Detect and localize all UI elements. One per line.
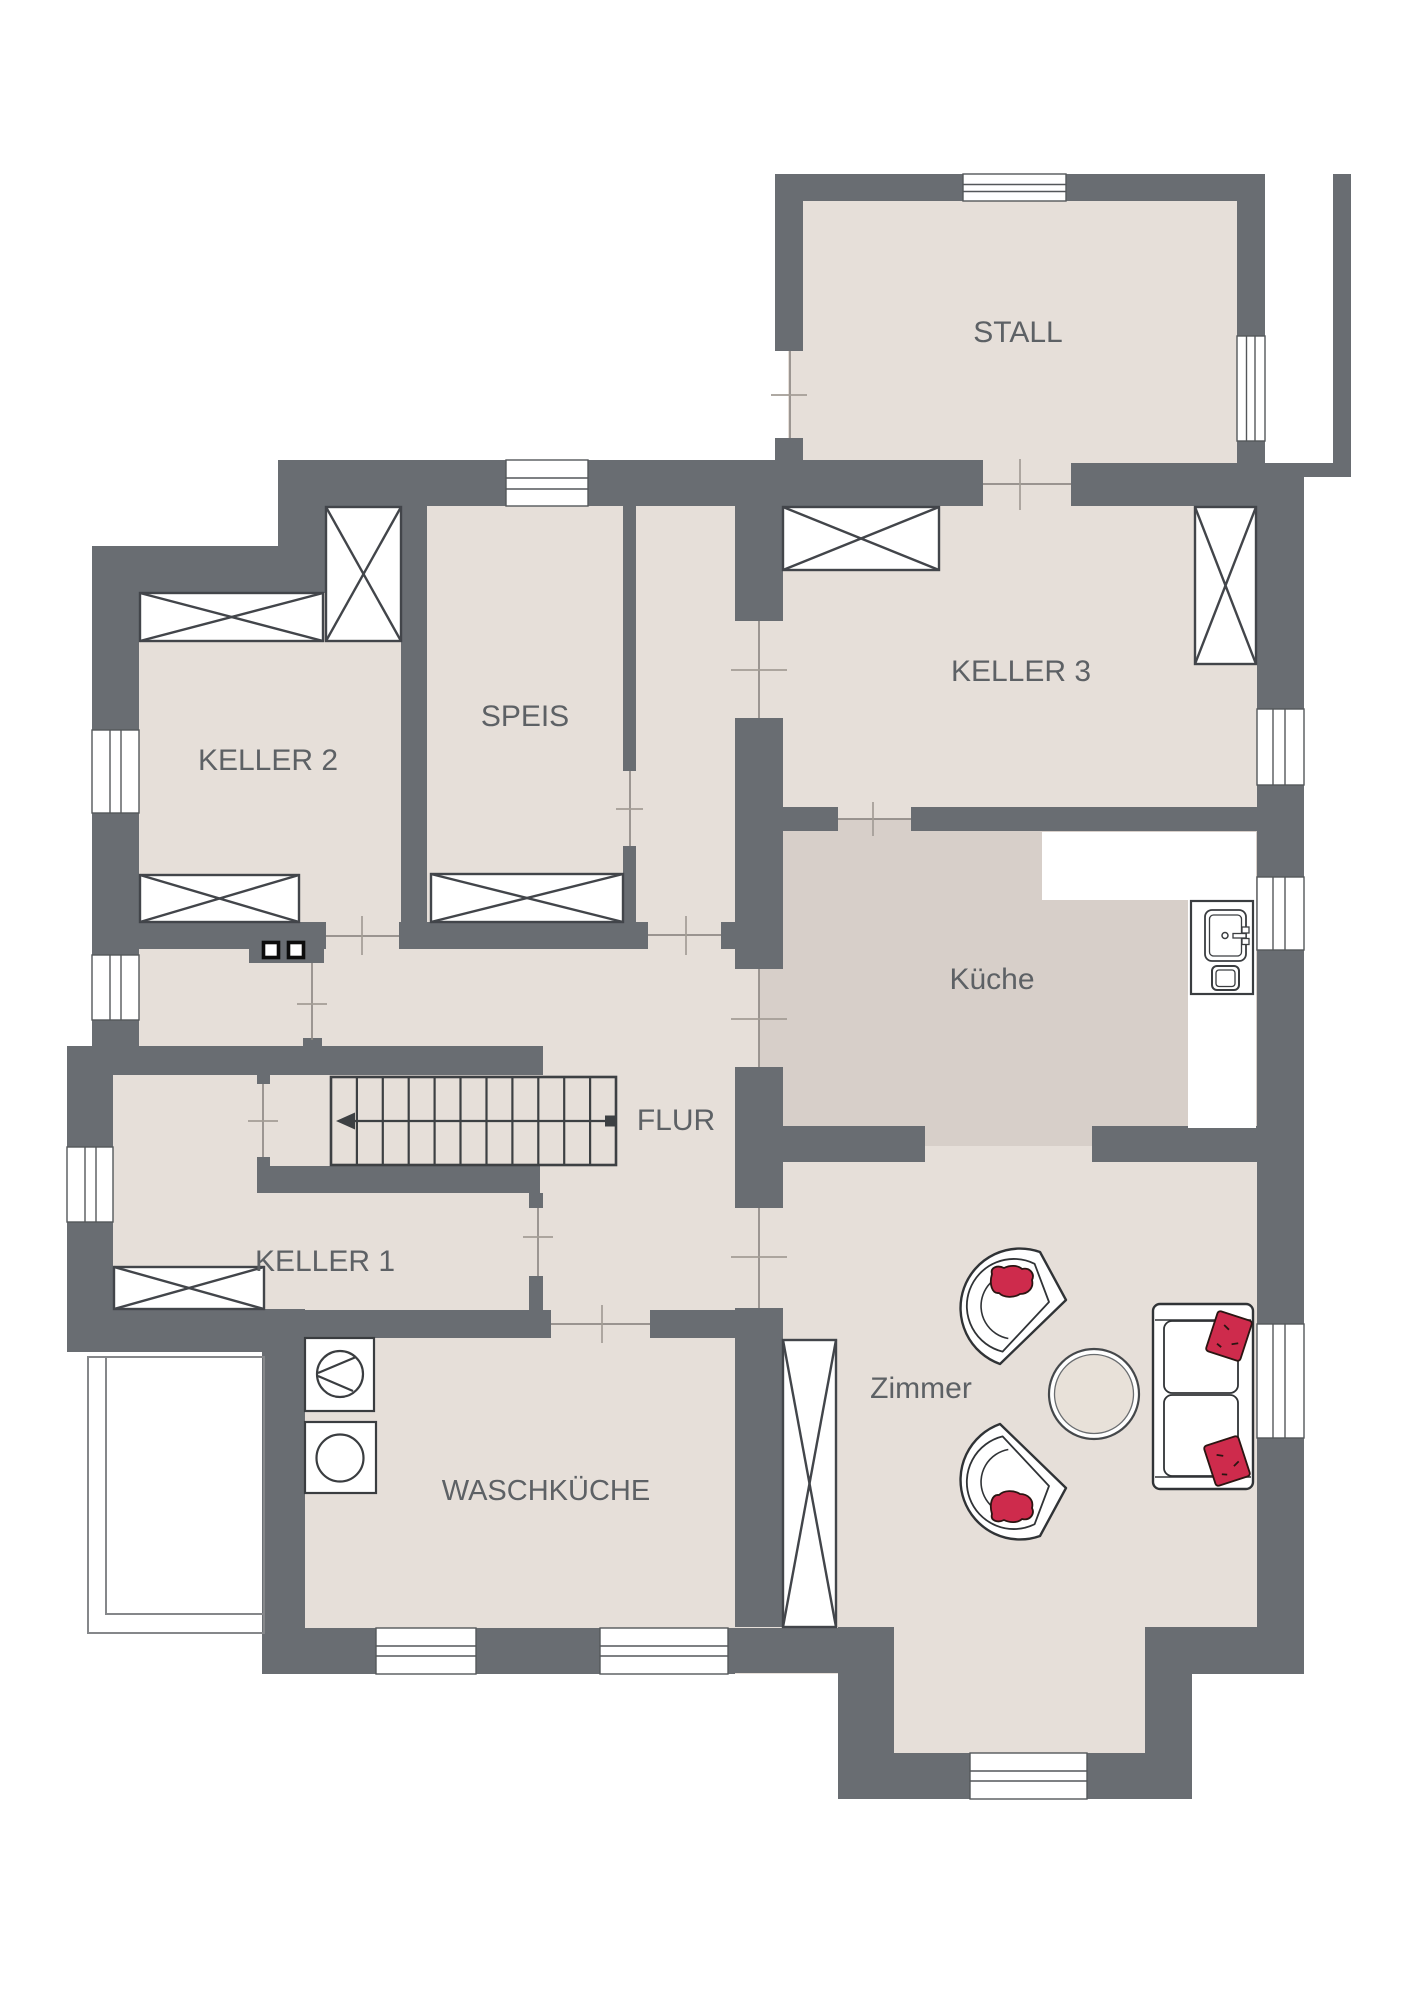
svg-text:Küche: Küche bbox=[949, 963, 1034, 996]
svg-text:STALL: STALL bbox=[973, 316, 1063, 349]
svg-text:FLUR: FLUR bbox=[637, 1104, 715, 1137]
svg-text:KELLER 3: KELLER 3 bbox=[951, 655, 1091, 688]
svg-text:SPEIS: SPEIS bbox=[481, 700, 569, 733]
svg-text:KELLER 1: KELLER 1 bbox=[255, 1245, 395, 1278]
svg-text:WASCHKÜCHE: WASCHKÜCHE bbox=[442, 1475, 650, 1507]
svg-text:Zimmer: Zimmer bbox=[870, 1372, 972, 1405]
svg-text:KELLER 2: KELLER 2 bbox=[198, 744, 338, 777]
